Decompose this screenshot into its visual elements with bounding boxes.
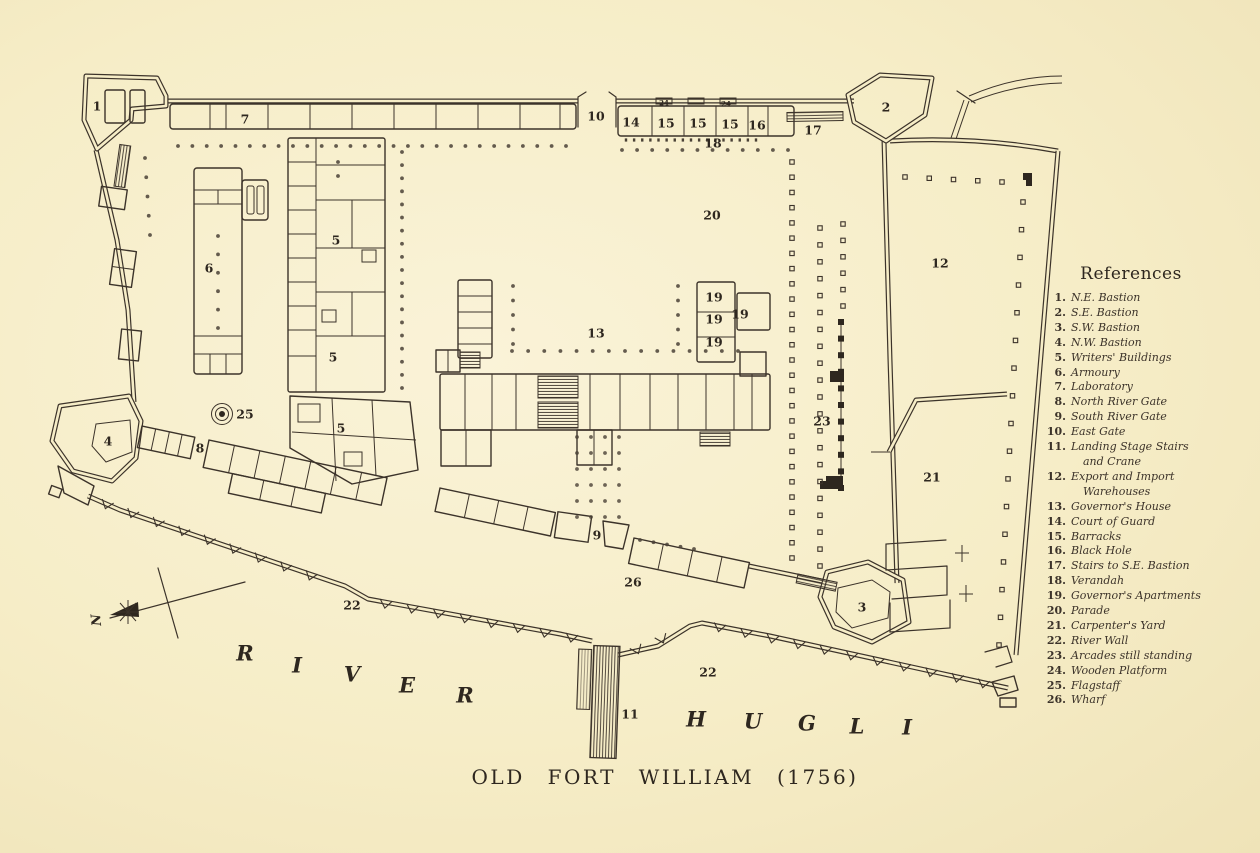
- reference-item: 16.Black Hole: [1040, 544, 1222, 559]
- reference-item: 24.Wooden Platform: [1040, 664, 1222, 679]
- south-river-gate: [603, 521, 629, 549]
- river-name-letter: L: [850, 714, 865, 739]
- reference-item: 20.Parade: [1040, 604, 1222, 619]
- river-wall-hatching: [100, 499, 991, 689]
- map-label: 5: [329, 350, 338, 365]
- map-label: 1: [93, 99, 102, 114]
- map-label: 23: [813, 414, 830, 429]
- map-label: 8: [196, 441, 205, 456]
- reference-item: 26.Wharf: [1040, 693, 1222, 708]
- references-heading: References: [1040, 264, 1222, 284]
- river-name-letter: H: [686, 707, 706, 732]
- reference-item: 22.River Wall: [1040, 634, 1222, 649]
- map-label: 24: [721, 100, 731, 109]
- river-name-letter: E: [399, 673, 415, 698]
- reference-item: 9.South River Gate: [1040, 410, 1222, 425]
- map-label: 5: [332, 233, 341, 248]
- river-name-letter: G: [798, 711, 816, 736]
- map-label: 5: [337, 421, 346, 436]
- map-canvas: 1710141515151624241721820126555191919191…: [0, 0, 1260, 853]
- bastions: [52, 75, 932, 642]
- stairs-to-se-bastion: [787, 112, 843, 122]
- reference-item: 10.East Gate: [1040, 425, 1222, 440]
- map-label: 15: [689, 116, 706, 131]
- reference-item: 6.Armoury: [1040, 366, 1222, 381]
- reference-item: 4.N.W. Bastion: [1040, 336, 1222, 351]
- references-list: 1.N.E. Bastion2.S.E. Bastion3.S.W. Basti…: [1040, 291, 1222, 708]
- reference-item: 17.Stairs to S.E. Bastion: [1040, 559, 1222, 574]
- compass-rose: [110, 568, 245, 638]
- bastion-interiors: [92, 90, 890, 628]
- references-panel: References 1.N.E. Bastion2.S.E. Bastion3…: [1040, 264, 1222, 708]
- reference-item: 2.S.E. Bastion: [1040, 306, 1222, 321]
- map-label: 19: [705, 290, 722, 305]
- reference-item: 1.N.E. Bastion: [1040, 291, 1222, 306]
- reference-item: 23.Arcades still standing: [1040, 649, 1222, 664]
- map-label: 2: [882, 100, 891, 115]
- river-name-letter: V: [344, 662, 360, 687]
- map-label: 6: [205, 261, 214, 276]
- map-label: 7: [241, 112, 250, 127]
- map-label: 10: [587, 109, 604, 124]
- map-label: 19: [731, 307, 748, 322]
- reference-item: 8.North River Gate: [1040, 395, 1222, 410]
- reference-item: 5.Writers' Buildings: [1040, 351, 1222, 366]
- compass-north-label: N: [89, 613, 105, 626]
- reference-item-line2: Warehouses: [1083, 485, 1222, 500]
- reference-item: 13.Governor's House: [1040, 500, 1222, 515]
- reference-item: 15.Barracks: [1040, 530, 1222, 545]
- river-name-letter: I: [902, 715, 912, 740]
- reference-item-line2: and Crane: [1083, 455, 1222, 470]
- river-name-letter: U: [744, 709, 762, 734]
- map-title: OLD FORT WILLIAM (1756): [440, 765, 890, 789]
- map-label: 13: [587, 326, 604, 341]
- reference-item: 19.Governor's Apartments: [1040, 589, 1222, 604]
- river-name-letter: I: [292, 653, 302, 678]
- reference-item: 12.Export and Import: [1040, 470, 1222, 485]
- flagstaff: [212, 404, 233, 425]
- map-label: 16: [748, 118, 765, 133]
- river-name-letter: R: [236, 641, 253, 666]
- reference-item: 25.Flagstaff: [1040, 679, 1222, 694]
- map-label: 25: [236, 407, 253, 422]
- map-label: 26: [624, 575, 641, 590]
- map-label: 17: [804, 123, 821, 138]
- map-label: 22: [699, 665, 716, 680]
- nw-bastion: [52, 396, 141, 481]
- map-label: 19: [705, 312, 722, 327]
- map-label: 19: [705, 335, 722, 350]
- landing-stage: [575, 645, 620, 758]
- annex-structures: [871, 76, 1062, 632]
- map-label: 12: [931, 256, 948, 271]
- reference-item: 18.Verandah: [1040, 574, 1222, 589]
- reference-item: 11.Landing Stage Stairs: [1040, 440, 1222, 455]
- map-label: 9: [593, 528, 602, 543]
- reference-item: 14.Court of Guard: [1040, 515, 1222, 530]
- map-label: 21: [923, 470, 940, 485]
- writers-buildings: [288, 138, 418, 484]
- map-label: 4: [104, 434, 113, 449]
- reference-item: 21.Carpenter's Yard: [1040, 619, 1222, 634]
- map-label: 15: [721, 117, 738, 132]
- map-label: 15: [657, 116, 674, 131]
- river-side-rooms: [137, 426, 837, 591]
- map-label: 14: [622, 115, 639, 130]
- reference-item: 7.Laboratory: [1040, 380, 1222, 395]
- river-name-letter: R: [456, 683, 473, 708]
- map-label: 20: [703, 208, 720, 223]
- reference-item: 3.S.W. Bastion: [1040, 321, 1222, 336]
- map-label: 18: [704, 136, 721, 151]
- map-label: 3: [858, 600, 867, 615]
- map-label: 24: [659, 99, 669, 108]
- governors-house: [436, 280, 770, 466]
- map-label: 11: [621, 707, 638, 722]
- map-label: 22: [343, 598, 360, 613]
